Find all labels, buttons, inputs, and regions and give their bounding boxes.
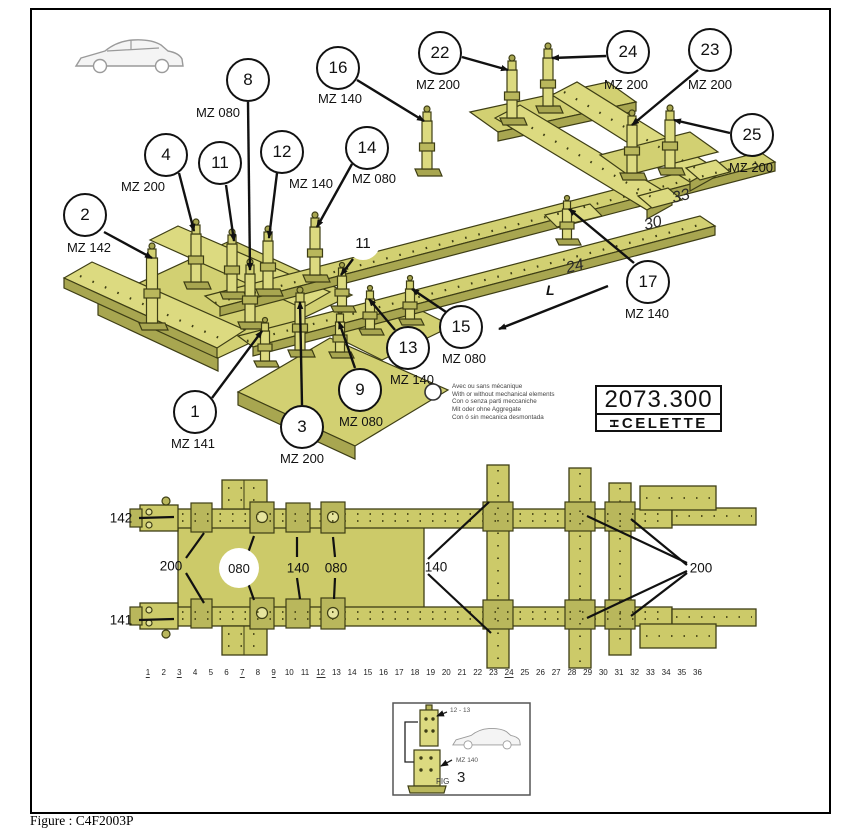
- callout-arrow-4: [179, 173, 194, 231]
- ruler-number-8: 8: [256, 668, 260, 677]
- callout-1: 1: [173, 390, 217, 434]
- legend-line-3: Con o senza parti meccaniche: [452, 398, 555, 406]
- ruler-number-4: 4: [193, 668, 197, 677]
- callout-arrow-14: [317, 164, 352, 227]
- callout-label-14: MZ 080: [352, 171, 396, 186]
- callout-arrow-8: [248, 102, 250, 270]
- callout-16: 16: [316, 46, 360, 90]
- ruler-number-14: 14: [348, 668, 357, 677]
- callout-17: 17: [626, 260, 670, 304]
- callout-4: 4: [144, 133, 188, 177]
- callout-label-22: MZ 200: [416, 77, 460, 92]
- ruler-number-21: 21: [458, 668, 467, 677]
- top-view-label-141: 141: [110, 613, 133, 628]
- ruler-number-15: 15: [363, 668, 372, 677]
- callout-arrow-24: [552, 56, 606, 58]
- ruler-number-31: 31: [615, 668, 624, 677]
- callout-3: 3: [280, 405, 324, 449]
- inset-part-label: MZ 140: [456, 757, 478, 764]
- ruler-number-32: 32: [630, 668, 639, 677]
- top-view-label-142: 142: [110, 511, 133, 526]
- callout-label-25: MZ 200: [729, 160, 773, 175]
- legend-line-5: Con ó sin mecanica desmontada: [452, 414, 555, 422]
- ruler-number-23: 23: [489, 668, 498, 677]
- top-view-label-080: 080: [219, 548, 259, 588]
- ruler-number-11: 11: [301, 668, 309, 677]
- ruler-number-5: 5: [209, 668, 213, 677]
- ruler-number-17: 17: [395, 668, 404, 677]
- callout-label-8: MZ 080: [196, 105, 240, 120]
- ruler-number-30: 30: [599, 668, 608, 677]
- callout-24: 24: [606, 30, 650, 74]
- callout-label-4: MZ 200: [121, 179, 165, 194]
- callout-11: 11: [198, 141, 242, 185]
- callout-25: 25: [730, 113, 774, 157]
- callout-label-13: MZ 140: [390, 372, 434, 387]
- ruler-number-3: 3: [177, 668, 181, 678]
- ruler-number-12: 12: [316, 668, 325, 678]
- ruler-number-36: 36: [693, 668, 702, 677]
- callout-label-1: MZ 141: [171, 436, 215, 451]
- leader-141-0: [139, 619, 174, 620]
- ruler-number-27: 27: [552, 668, 561, 677]
- ruler-number-7: 7: [240, 668, 244, 678]
- ruler-number-24: 24: [505, 668, 514, 678]
- ruler-number-25: 25: [520, 668, 529, 677]
- callout-label-17: MZ 140: [625, 306, 669, 321]
- brand-row: H CELETTE: [597, 415, 720, 432]
- top-view-label-140: 140: [425, 560, 448, 575]
- top-view-label-200: 200: [690, 561, 713, 576]
- legend-text: Avec ou sans mécaniqueWith or without me…: [452, 383, 555, 422]
- callout-label-3: MZ 200: [280, 451, 324, 466]
- top-view-label-080: 080: [325, 561, 348, 576]
- callout-9: 9: [338, 368, 382, 412]
- ruler-number-33: 33: [646, 668, 655, 677]
- ruler-number-20: 20: [442, 668, 451, 677]
- ruler-number-26: 26: [536, 668, 545, 677]
- diagram-graphics: [0, 0, 855, 832]
- ruler-number-35: 35: [677, 668, 686, 677]
- brand-name: CELETTE: [622, 415, 708, 432]
- callout-11: 11: [346, 226, 380, 260]
- callout-arrow-2: [104, 232, 152, 258]
- part-number: 2073.300: [597, 387, 720, 415]
- callout-2: 2: [63, 193, 107, 237]
- callout-arrow-22: [462, 57, 508, 70]
- leader-080-1: [334, 578, 335, 599]
- ruler-number-13: 13: [332, 668, 341, 677]
- ruler-number-19: 19: [426, 668, 435, 677]
- ruler-number-16: 16: [379, 668, 388, 677]
- inset-ref-label: 12 - 13: [450, 707, 470, 714]
- callout-label-2: MZ 142: [67, 240, 111, 255]
- celette-logo-icon: H: [605, 419, 622, 428]
- callout-label-9: MZ 080: [339, 414, 383, 429]
- ruler-number-2: 2: [161, 668, 165, 677]
- leader-142-0: [139, 517, 174, 518]
- ruler-number-6: 6: [224, 668, 228, 677]
- ruler-number-10: 10: [285, 668, 294, 677]
- callout-22: 22: [418, 31, 462, 75]
- ruler-number-34: 34: [662, 668, 671, 677]
- callout-14: 14: [345, 126, 389, 170]
- callout-15: 15: [439, 305, 483, 349]
- top-view-label-200: 200: [160, 559, 183, 574]
- callout-8: 8: [226, 58, 270, 102]
- callout-label-16: MZ 140: [318, 91, 362, 106]
- callout-23: 23: [688, 28, 732, 72]
- callout-arrow-16: [357, 80, 424, 121]
- inset-fig-label: FIG: [436, 777, 449, 786]
- callout-13: 13: [386, 326, 430, 370]
- ruler-number-1: 1: [146, 668, 150, 678]
- legend-line-1: Avec ou sans mécanique: [452, 383, 555, 391]
- callout-label-23: MZ 200: [688, 77, 732, 92]
- ruler-number-18: 18: [410, 668, 419, 677]
- legend-line-4: Mit oder ohne Aggregate: [452, 406, 555, 414]
- callout-label-24: MZ 200: [604, 77, 648, 92]
- legend-line-2: With or without mechanical elements: [452, 391, 555, 399]
- ruler-number-22: 22: [473, 668, 482, 677]
- ruler-number-29: 29: [583, 668, 592, 677]
- callout-label-15: MZ 080: [442, 351, 486, 366]
- part-number-plate: 2073.300 H CELETTE: [595, 385, 722, 432]
- callout-arrow-25: [674, 120, 730, 133]
- callout-12: 12: [260, 130, 304, 174]
- callout-label-12: MZ 140: [289, 176, 333, 191]
- callout-arrow-12: [269, 173, 277, 238]
- top-view-label-140: 140: [287, 561, 310, 576]
- ruler-number-9: 9: [271, 668, 275, 678]
- inset-fig-number: 3: [457, 769, 465, 786]
- figure-caption: Figure : C4F2003P: [30, 813, 134, 829]
- car-icon: [76, 40, 183, 73]
- ruler-number-28: 28: [567, 668, 576, 677]
- direction-label: L: [546, 282, 555, 298]
